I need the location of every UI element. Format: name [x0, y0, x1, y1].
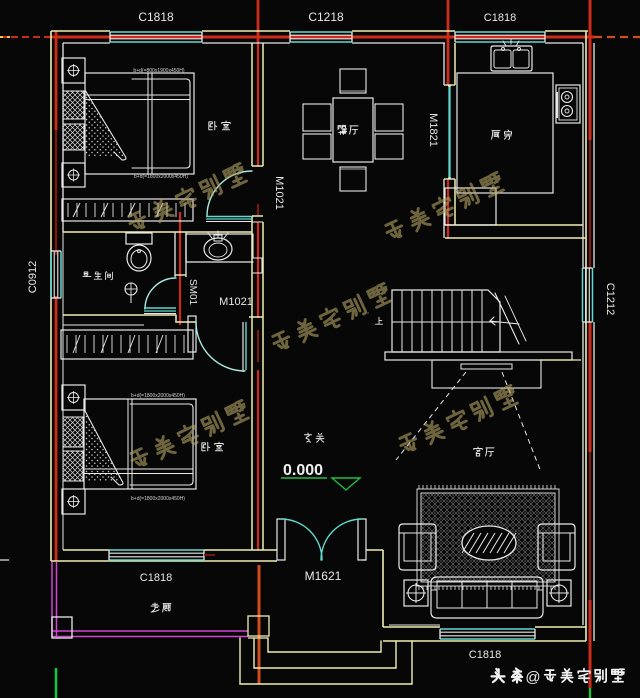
svg-text:C1218: C1218: [308, 10, 344, 24]
svg-text:@: @: [525, 669, 540, 686]
svg-text:b+d(=1800x2000x450H): b+d(=1800x2000x450H): [131, 393, 185, 399]
svg-text:C1818: C1818: [484, 12, 516, 24]
svg-text:C0912: C0912: [27, 261, 39, 293]
svg-text:C1818: C1818: [140, 572, 172, 584]
svg-text:M1021: M1021: [273, 176, 285, 210]
svg-text:M1621: M1621: [305, 569, 342, 583]
svg-text:SM01: SM01: [187, 279, 198, 306]
svg-text:C1818: C1818: [469, 649, 501, 661]
svg-text:b+d(=1800x2000x450H): b+d(=1800x2000x450H): [134, 174, 188, 180]
svg-text:0.000: 0.000: [283, 462, 323, 479]
svg-text:C1818: C1818: [138, 10, 174, 24]
svg-text:M1021: M1021: [219, 296, 253, 308]
svg-text:b+d(=1800x2000x450H): b+d(=1800x2000x450H): [131, 496, 185, 502]
svg-text:M1821: M1821: [427, 113, 439, 147]
svg-text:C1212: C1212: [604, 283, 616, 315]
svg-text:b+d(=800x1900x450H): b+d(=800x1900x450H): [133, 68, 184, 74]
